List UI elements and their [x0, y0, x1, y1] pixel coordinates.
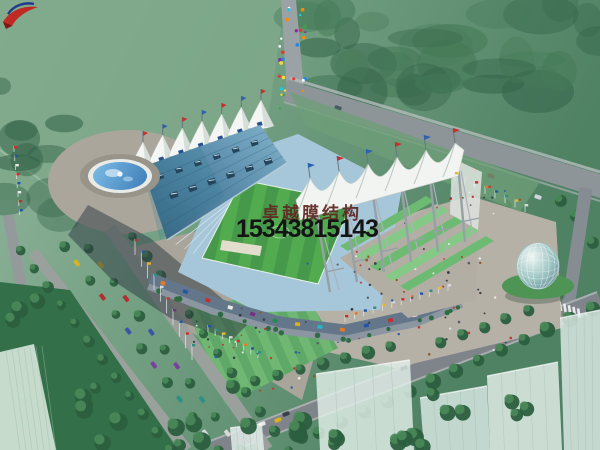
- glass-dome: [517, 243, 559, 289]
- stadium-rendering: 卓越膜结构 15343815143: [0, 0, 600, 450]
- scene-canvas: [0, 0, 600, 450]
